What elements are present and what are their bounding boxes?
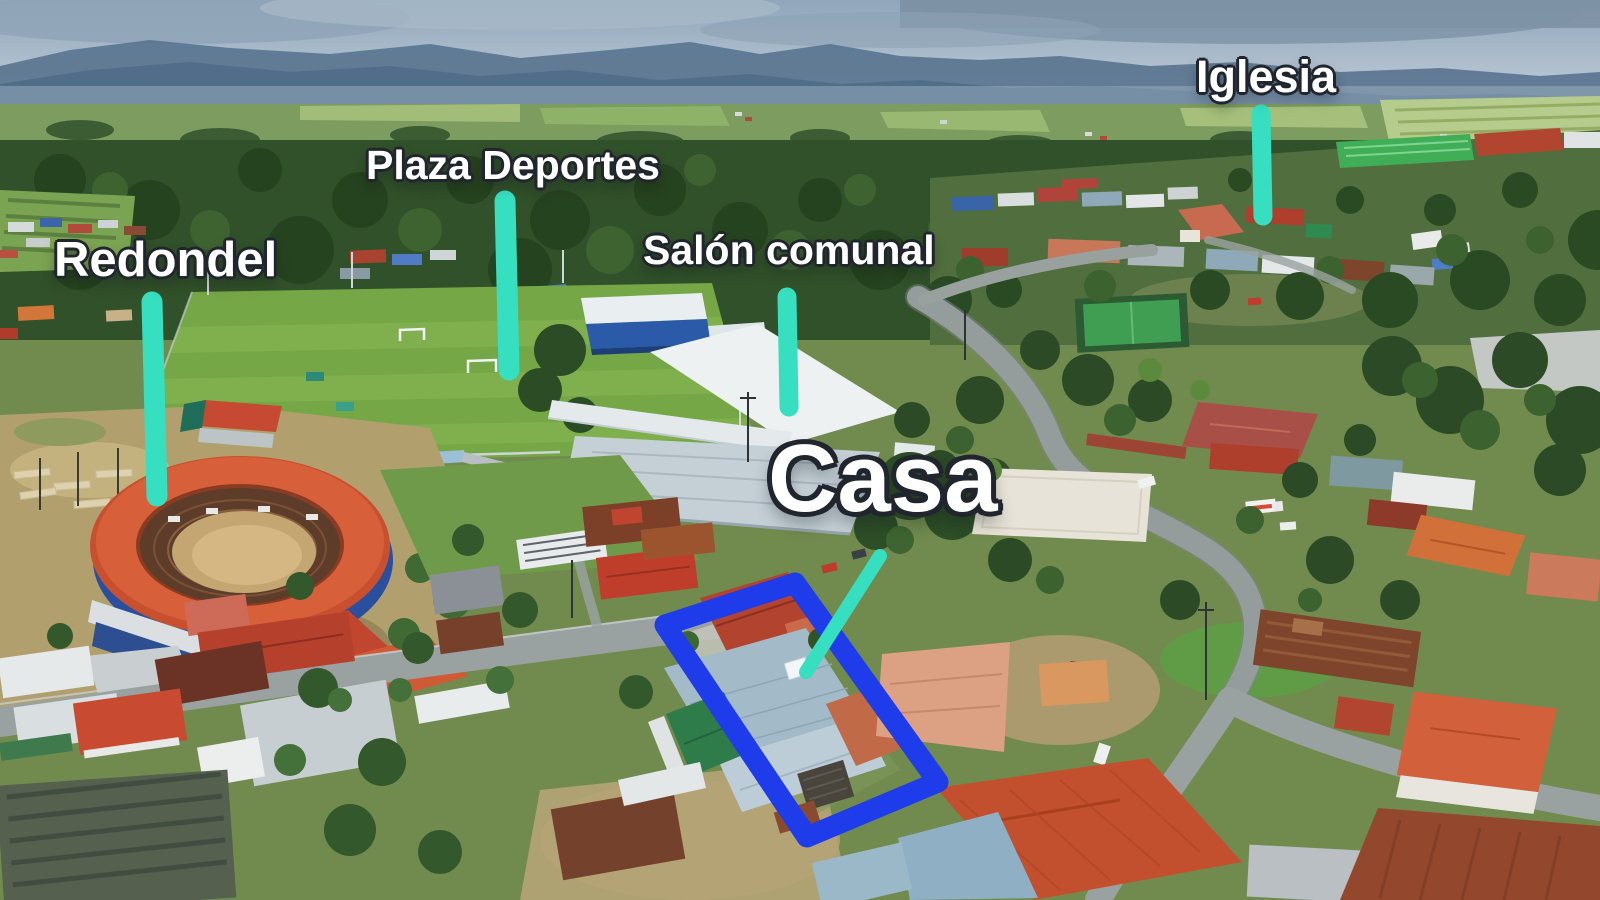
sky-layer [0,0,1600,116]
label-iglesia: Iglesia [1196,54,1336,100]
concrete-court [972,468,1152,542]
label-casa: Casa [768,430,998,528]
corrugated-shed [0,770,236,900]
annotated-aerial-map: Redondel Plaza Deportes Salón comunal Ig… [0,0,1600,900]
label-redondel: Redondel [54,236,277,286]
salmon-carport [876,642,1010,752]
sports-court [1075,293,1190,353]
label-plaza-deportes: Plaza Deportes [366,145,660,187]
label-salon-comunal: Salón comunal [643,230,935,272]
